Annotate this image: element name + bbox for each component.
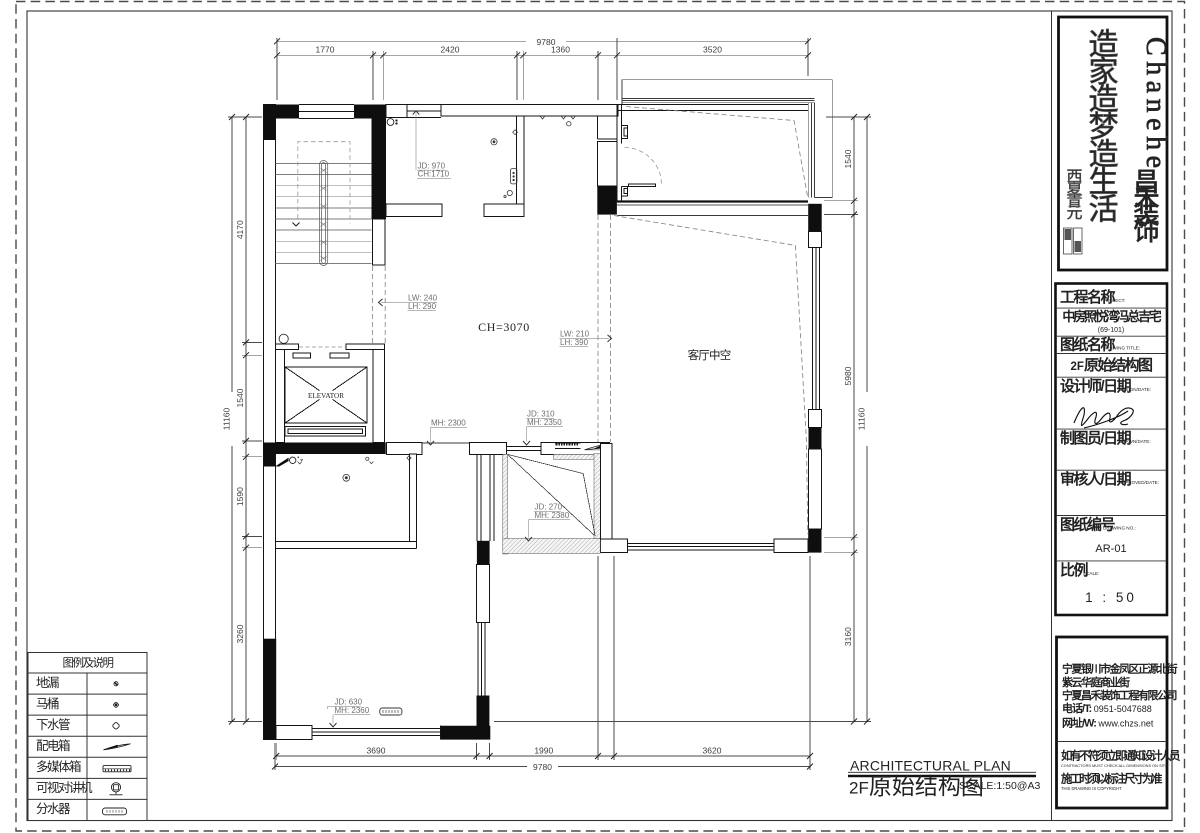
svg-text:分水器: 分水器 xyxy=(36,802,71,816)
svg-text:SCALE:1:50@A3: SCALE:1:50@A3 xyxy=(959,780,1040,792)
svg-text:设计师/日期: 设计师/日期 xyxy=(1060,377,1132,395)
svg-text:(69-101): (69-101) xyxy=(1098,327,1124,334)
svg-text:MH: 2380: MH: 2380 xyxy=(535,511,570,520)
svg-text:可视对讲机: 可视对讲机 xyxy=(36,780,93,795)
svg-text:1770: 1770 xyxy=(316,45,335,55)
svg-text:地漏: 地漏 xyxy=(36,675,59,690)
svg-text:宁夏银川市金凤区正源北街: 宁夏银川市金凤区正源北街 xyxy=(1062,662,1177,676)
svg-text:下水管: 下水管 xyxy=(36,717,70,732)
svg-text:马桶: 马桶 xyxy=(36,696,59,711)
svg-text:西夏青元: 西夏青元 xyxy=(1064,168,1083,220)
svg-text:5980: 5980 xyxy=(843,366,853,385)
svg-text:MH: 2300: MH: 2300 xyxy=(431,419,466,428)
svg-text:APPROVED/DATE:: APPROVED/DATE: xyxy=(1119,480,1159,485)
svg-text:中房照悦湾冯总吉宅: 中房照悦湾冯总吉宅 xyxy=(1062,309,1161,324)
svg-text:CONTRACTORS MUST CHECK ALL DIM: CONTRACTORS MUST CHECK ALL DIMENSIONS ON… xyxy=(1061,763,1168,768)
svg-text:ELEVATOR: ELEVATOR xyxy=(308,392,344,400)
svg-text:图纸名称: 图纸名称 xyxy=(1060,336,1116,354)
svg-text:昌禾装饰: 昌禾装饰 xyxy=(1130,168,1160,243)
svg-text:宁夏昌禾装饰工程有限公司: 宁夏昌禾装饰工程有限公司 xyxy=(1062,688,1176,702)
svg-text:图例及说明: 图例及说明 xyxy=(63,656,114,670)
svg-text:如有不符须立即通知设计人员: 如有不符须立即通知设计人员 xyxy=(1061,749,1181,763)
svg-text:网址/W: www.chzs.net: 网址/W: www.chzs.net xyxy=(1062,716,1154,730)
svg-text:MH: 2360: MH: 2360 xyxy=(335,706,370,715)
svg-text:11160: 11160 xyxy=(857,408,867,431)
svg-text:SCALE:: SCALE: xyxy=(1083,571,1099,576)
svg-text:配电箱: 配电箱 xyxy=(36,738,70,753)
svg-text:施工时须以标注尺寸为准: 施工时须以标注尺寸为准 xyxy=(1061,772,1163,786)
svg-text:CH:1710: CH:1710 xyxy=(418,170,450,179)
svg-text:1360: 1360 xyxy=(551,45,570,55)
svg-text:9780: 9780 xyxy=(533,762,552,772)
svg-text:2420: 2420 xyxy=(441,45,460,55)
svg-text:CH=3070: CH=3070 xyxy=(478,320,530,334)
svg-text:11160: 11160 xyxy=(222,408,232,431)
svg-text:1990: 1990 xyxy=(534,745,553,755)
svg-text:紫云华庭商业街: 紫云华庭商业街 xyxy=(1062,675,1130,689)
svg-text:1590: 1590 xyxy=(235,487,245,506)
svg-text:1540: 1540 xyxy=(235,388,245,407)
svg-text:LH: 290: LH: 290 xyxy=(408,302,437,311)
svg-text:工程名称: 工程名称 xyxy=(1060,288,1116,306)
svg-text:DRAWING NO.:: DRAWING NO.: xyxy=(1103,526,1136,531)
svg-text:THIS DRAWING IS COPYRIGHT: THIS DRAWING IS COPYRIGHT xyxy=(1061,786,1122,791)
svg-text:LH: 390: LH: 390 xyxy=(560,338,589,347)
svg-text:PROJECT:: PROJECT: xyxy=(1103,298,1125,303)
svg-text:制图员/日期: 制图员/日期 xyxy=(1060,429,1132,447)
svg-text:电话/T: 0951-5047688: 电话/T: 0951-5047688 xyxy=(1062,701,1152,715)
svg-text:4170: 4170 xyxy=(235,220,245,239)
svg-text:ARCHITECTURAL PLAN: ARCHITECTURAL PLAN xyxy=(850,758,1011,774)
svg-text:造家造梦造生活: 造家造梦造生活 xyxy=(1084,28,1118,223)
svg-text:3620: 3620 xyxy=(703,745,722,755)
svg-text:3260: 3260 xyxy=(235,624,245,643)
svg-text:多媒体箱: 多媒体箱 xyxy=(36,759,81,774)
svg-text:比例: 比例 xyxy=(1060,561,1089,579)
svg-text:DESIGN/DATE:: DESIGN/DATE: xyxy=(1119,387,1151,392)
svg-text:3520: 3520 xyxy=(703,45,722,55)
svg-text:审核人/日期: 审核人/日期 xyxy=(1060,470,1132,488)
svg-text:DRAWING TITLE:: DRAWING TITLE: xyxy=(1103,346,1140,351)
svg-text:图纸编号: 图纸编号 xyxy=(1060,516,1116,534)
svg-text:1540: 1540 xyxy=(843,149,853,168)
svg-text:客厅中空: 客厅中空 xyxy=(688,348,731,362)
svg-text:DRAWN/DATE:: DRAWN/DATE: xyxy=(1119,439,1151,444)
svg-text:3690: 3690 xyxy=(367,745,386,755)
svg-text:3160: 3160 xyxy=(843,627,853,646)
svg-text:1 : 50: 1 : 50 xyxy=(1085,590,1137,605)
svg-text:MH: 2350: MH: 2350 xyxy=(527,418,562,427)
svg-text:AR-01: AR-01 xyxy=(1095,543,1126,555)
